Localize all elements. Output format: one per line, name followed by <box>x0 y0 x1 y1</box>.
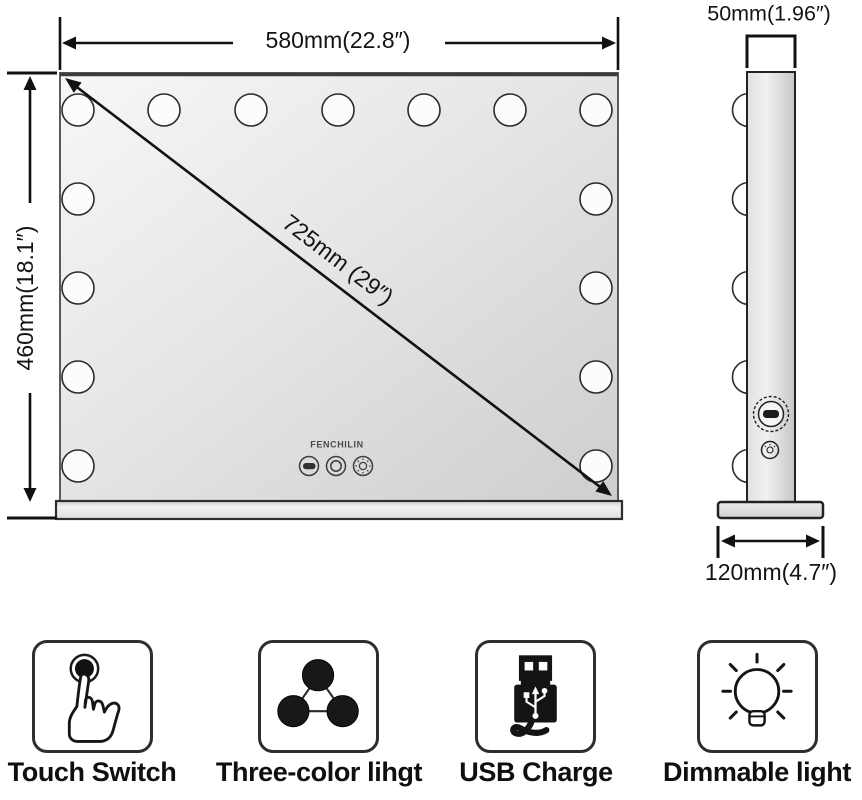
usb-socket <box>763 410 779 418</box>
base-arrowhead-right <box>806 535 820 548</box>
feature-label-three-color-light: Three-color lihgt <box>216 757 422 788</box>
height-arrowhead-bottom <box>24 488 37 502</box>
depth-dimension-label: 50mm(1.96″) <box>707 2 831 26</box>
led-bulb <box>580 183 612 215</box>
base-width-dimension-label: 120mm(4.7″) <box>705 559 837 585</box>
height-dimension-label: 460mm(18.1″) <box>12 226 38 371</box>
base-width-dimension <box>718 526 823 558</box>
product-dimension-diagram: FENCHILIN <box>0 0 862 800</box>
led-bulb <box>580 94 612 126</box>
feature-card-touch-switch <box>32 640 153 753</box>
base-arrowhead-left <box>721 535 735 548</box>
led-bulb <box>580 450 612 482</box>
feature-card-three-color-light <box>258 640 379 753</box>
led-bulb <box>148 94 180 126</box>
dimmable-light-icon <box>700 643 815 750</box>
led-bulb <box>235 94 267 126</box>
led-bulb <box>494 94 526 126</box>
width-dimension-label: 580mm(22.8″) <box>266 27 411 53</box>
width-dimension: 580mm(22.8″) <box>60 17 618 70</box>
side-view: 50mm(1.96″) <box>705 2 837 585</box>
led-bulb <box>408 94 440 126</box>
height-dimension: 460mm(18.1″) <box>7 73 57 518</box>
led-bulb <box>580 272 612 304</box>
width-arrowhead-left <box>62 37 76 50</box>
height-arrowhead-top <box>24 76 37 90</box>
mirror-dimension-drawing: FENCHILIN <box>0 0 862 620</box>
led-bulb <box>62 94 94 126</box>
three-color-light-icon <box>261 643 376 750</box>
stand-base <box>718 502 823 518</box>
led-bulb <box>322 94 354 126</box>
feature-card-dimmable-light <box>697 640 818 753</box>
depth-dimension-bracket <box>747 36 795 68</box>
usb-charge-icon <box>478 643 593 750</box>
touch-switch-icon <box>35 643 150 750</box>
feature-label-touch-switch: Touch Switch <box>8 757 177 788</box>
feature-label-dimmable-light: Dimmable light <box>663 757 851 788</box>
width-arrowhead-right <box>602 37 616 50</box>
led-bulb <box>62 272 94 304</box>
mirror-base-strip <box>56 501 622 519</box>
led-bulb <box>580 361 612 393</box>
feature-label-usb-charge: USB Charge <box>459 757 613 788</box>
front-view: FENCHILIN <box>56 73 622 519</box>
power-button-icon <box>303 463 316 469</box>
led-bulb <box>62 450 94 482</box>
led-bulb <box>62 361 94 393</box>
feature-card-usb-charge <box>475 640 596 753</box>
led-bulb <box>62 183 94 215</box>
brand-label: FENCHILIN <box>310 439 363 449</box>
mirror-side-panel <box>747 72 795 502</box>
